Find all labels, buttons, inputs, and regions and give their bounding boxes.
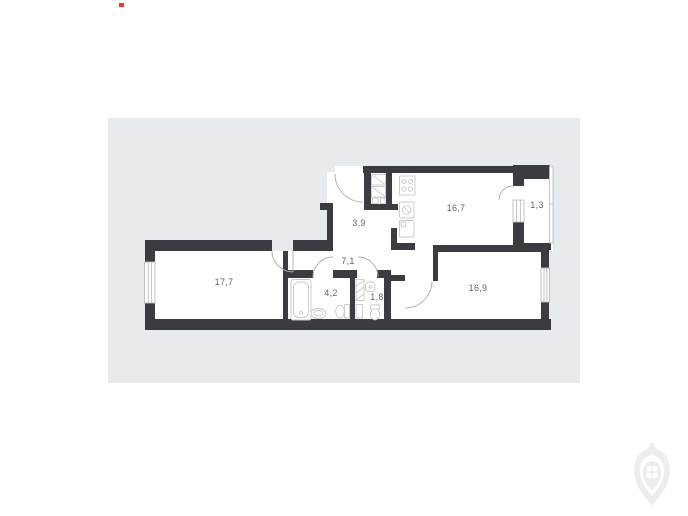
window-frame [541,268,550,302]
fridge-icon [400,221,415,238]
wc-sink-icon [366,282,376,292]
wall [513,243,551,250]
red-marker-icon [119,3,124,7]
room-label-balcony: 1,3 [530,200,543,210]
wall [350,278,355,319]
wall [145,240,155,262]
wall [433,252,438,275]
wall [363,166,513,173]
floorplan-canvas: 17,7 4,2 7,1 1,8 3,9 16,7 1,3 16,9 [0,0,688,516]
wall [433,275,438,281]
wall [513,179,524,186]
wc-storage-icon [356,305,363,319]
wall [364,173,371,209]
bathtub-icon [291,280,311,321]
wall [513,165,550,179]
wall [145,240,272,251]
wc-cabinet-icon [356,280,364,301]
bathroom-sink-icon [311,309,326,319]
wall [288,270,313,278]
developer-pin-logo [634,443,670,506]
wall [364,204,398,210]
washing-machine-icon [400,202,415,218]
pin-finial-dot [649,443,654,449]
wall [283,251,288,319]
room-label-bathroom: 4,2 [324,288,337,298]
wall [320,203,333,210]
room-label-bedroom: 16,9 [469,283,488,293]
balcony-glazing [550,166,554,243]
wall [293,240,332,251]
wall [145,319,551,330]
wall [333,270,357,278]
wall [386,173,392,204]
wall [391,275,405,281]
window-balcony-block [513,200,524,222]
wall [327,205,333,251]
room-label-kitchen: 16,7 [447,203,466,213]
glazing-line [550,166,554,243]
wall [513,222,524,243]
wall [384,270,391,319]
bathroom-toilet-icon [336,305,350,319]
room-label-wc: 1,8 [370,292,383,302]
floorplan-page: 17,7 4,2 7,1 1,8 3,9 16,7 1,3 16,9 [0,0,688,516]
room-label-hallway: 7,1 [341,256,354,266]
floor-entry-opening [335,166,363,206]
wc-toilet-icon [370,305,379,320]
room-label-entry: 3,9 [352,218,365,228]
window-bedroom [541,268,550,302]
wall [391,228,397,250]
stove-icon [400,176,416,195]
window-frame [513,200,524,222]
room-label-living: 17,7 [215,277,234,287]
window-living [145,262,156,303]
wall [541,302,549,319]
window-frame [145,262,156,303]
house-window-icon [647,466,657,478]
